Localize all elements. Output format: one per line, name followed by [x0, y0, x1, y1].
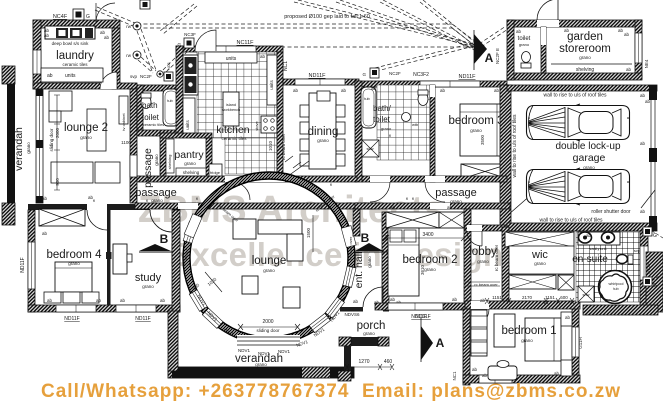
svg-text:ab: ab — [160, 298, 166, 303]
svg-text:grano: grano — [579, 55, 591, 60]
svg-text:G11H: G11H — [578, 337, 583, 348]
svg-text:lounge: lounge — [252, 255, 287, 267]
svg-text:1270: 1270 — [358, 359, 369, 365]
svg-text:grano: grano — [151, 198, 163, 203]
svg-text:grano: grano — [142, 284, 154, 289]
svg-text:ab: ab — [480, 298, 486, 303]
svg-text:units: units — [226, 56, 237, 62]
svg-text:ceramic tiles: ceramic tiles — [62, 62, 88, 67]
svg-text:fl: fl — [196, 196, 198, 201]
svg-text:NC11F: NC11F — [236, 40, 254, 46]
svg-text:wall to rise to u/s of roof ti: wall to rise to u/s of roof tiles — [539, 218, 603, 224]
svg-text:ND11F: ND11F — [458, 74, 476, 80]
svg-text:ND11F: ND11F — [20, 257, 26, 272]
svg-text:dining: dining — [308, 126, 339, 138]
svg-text:Call/Whatsapp: +263778767374: Call/Whatsapp: +263778767374 Email: plan… — [41, 381, 621, 402]
svg-text:G: G — [362, 72, 366, 77]
svg-text:stove: stove — [254, 120, 259, 130]
svg-text:NC2F E: NC2F E — [495, 48, 500, 64]
svg-text:units: units — [185, 120, 190, 130]
svg-text:study: study — [135, 272, 162, 284]
svg-text:ab: ab — [47, 298, 53, 303]
svg-text:NC2F: NC2F — [389, 71, 401, 76]
svg-text:grano: grano — [154, 154, 159, 166]
svg-text:shelving: shelving — [183, 170, 200, 175]
svg-text:ent. hall: ent. hall — [353, 252, 365, 289]
svg-text:shw: shw — [366, 146, 373, 151]
svg-text:B: B — [361, 231, 370, 245]
svg-text:storeroom: storeroom — [559, 43, 611, 55]
svg-text:ab: ab — [640, 93, 646, 98]
svg-text:NC4F: NC4F — [646, 262, 651, 274]
svg-text:ab: ab — [44, 33, 50, 38]
svg-text:ab: ab — [293, 88, 299, 93]
svg-text:grano: grano — [521, 338, 533, 343]
svg-text:proposed Ø100 gep laid to fall: proposed Ø100 gep laid to fall 1:60 — [284, 14, 370, 20]
svg-text:1100: 1100 — [121, 140, 131, 145]
svg-text:ab: ab — [104, 35, 110, 40]
svg-text:ab: ab — [640, 209, 646, 214]
svg-text:NC3F2: NC3F2 — [413, 72, 429, 78]
svg-text:grano: grano — [534, 261, 546, 266]
svg-text:grano: grano — [470, 128, 482, 133]
svg-text:rc beam over: rc beam over — [281, 133, 286, 160]
svg-text:bedroom 3: bedroom 3 — [449, 115, 504, 127]
svg-text:sliding door: sliding door — [256, 328, 280, 333]
svg-text:ab: ab — [482, 373, 488, 378]
svg-text:900: 900 — [55, 178, 60, 186]
svg-text:units: units — [65, 73, 76, 79]
svg-text:roller shutter door: roller shutter door — [591, 209, 631, 215]
svg-text:wic: wic — [531, 249, 548, 261]
svg-text:rc beam over: rc beam over — [494, 244, 499, 271]
svg-text:svp: svp — [634, 248, 641, 253]
svg-text:toilet: toilet — [373, 115, 391, 124]
svg-text:wtb: wtb — [412, 122, 419, 127]
svg-text:svp: svp — [130, 74, 138, 79]
svg-text:bath: bath — [142, 101, 158, 110]
svg-text:pantry: pantry — [174, 149, 204, 161]
svg-text:ab: ab — [390, 205, 396, 210]
svg-text:grano: grano — [477, 259, 489, 264]
svg-text:ab: ab — [586, 233, 592, 238]
svg-text:A: A — [485, 51, 494, 65]
svg-text:lounge 2: lounge 2 — [64, 122, 108, 134]
svg-text:ceramic tiles: ceramic tiles — [143, 123, 164, 127]
svg-text:grano: grano — [26, 142, 31, 154]
svg-text:NC4F: NC4F — [53, 14, 68, 20]
svg-text:G: G — [177, 42, 181, 47]
svg-text:verandah: verandah — [13, 127, 25, 171]
svg-text:rc beam over: rc beam over — [474, 282, 498, 287]
svg-text:ab: ab — [564, 28, 570, 33]
svg-text:NC3F: NC3F — [184, 32, 196, 37]
svg-text:garage: garage — [573, 152, 606, 164]
svg-text:ceramic tiles: ceramic tiles — [221, 136, 247, 141]
svg-text:ab: ab — [472, 367, 478, 372]
svg-text:460: 460 — [384, 359, 393, 365]
svg-text:shw: shw — [582, 292, 589, 297]
svg-text:NC1: NC1 — [283, 61, 289, 71]
svg-text:rw: rw — [126, 24, 131, 29]
svg-text:ND11F: ND11F — [135, 316, 150, 322]
svg-text:bath/: bath/ — [373, 104, 392, 113]
svg-text:grano: grano — [255, 362, 267, 367]
svg-text:fl: fl — [406, 196, 408, 201]
svg-text:bedroom 4: bedroom 4 — [47, 249, 103, 261]
svg-text:1010: 1010 — [268, 140, 273, 151]
svg-text:ab: ab — [452, 297, 458, 302]
svg-text:2170: 2170 — [522, 295, 533, 300]
svg-text:ND11F: ND11F — [308, 73, 326, 79]
svg-text:ab: ab — [120, 298, 126, 303]
svg-text:vanity unit: vanity unit — [589, 247, 607, 251]
svg-text:shelving: shelving — [576, 67, 595, 73]
svg-text:fl: fl — [412, 196, 414, 201]
svg-text:ND11F: ND11F — [415, 314, 430, 320]
svg-text:NC1: NC1 — [452, 371, 457, 380]
svg-text:G: G — [653, 283, 657, 289]
svg-text:grano: grano — [424, 267, 436, 272]
svg-text:ab: ab — [554, 371, 560, 376]
svg-text:B: B — [160, 232, 169, 246]
svg-text:tv cabinet: tv cabinet — [121, 113, 126, 131]
svg-text:wall to rise to u/s of roof ti: wall to rise to u/s of roof tiles — [512, 114, 518, 178]
svg-text:1500: 1500 — [306, 227, 311, 238]
svg-text:toilet: toilet — [142, 113, 160, 122]
svg-text:grano: grano — [263, 268, 275, 273]
svg-text:NC1: NC1 — [166, 61, 171, 70]
svg-text:ab: ab — [618, 28, 624, 33]
svg-text:tub: tub — [364, 96, 370, 101]
svg-text:G: G — [86, 14, 90, 20]
svg-text:units: units — [269, 80, 274, 90]
svg-text:passage: passage — [435, 187, 477, 199]
svg-text:ab: ab — [47, 73, 53, 79]
svg-text:3500: 3500 — [480, 134, 485, 145]
svg-text:grano: grano — [450, 199, 462, 204]
svg-text:ab: ab — [260, 54, 266, 59]
svg-text:ab: ab — [42, 231, 48, 236]
svg-text:2000: 2000 — [55, 127, 60, 138]
svg-text:double lock-up: double lock-up — [555, 141, 620, 152]
svg-text:NDVS6: NDVS6 — [344, 312, 360, 317]
svg-text:1151: 1151 — [545, 295, 555, 300]
svg-text:garden: garden — [567, 31, 603, 43]
svg-text:grano: grano — [80, 135, 92, 140]
svg-text:NE4: NE4 — [644, 59, 649, 68]
svg-text:ab: ab — [371, 86, 377, 91]
svg-text:3400: 3400 — [422, 232, 433, 238]
svg-text:tub: tub — [613, 287, 618, 291]
svg-text:wall to rise to u/s of roof ti: wall to rise to u/s of roof tiles — [543, 93, 607, 99]
svg-text:ab: ab — [390, 297, 396, 302]
svg-text:2000: 2000 — [262, 319, 273, 325]
svg-text:grano: grano — [68, 261, 80, 266]
svg-text:ab: ab — [447, 205, 453, 210]
svg-text:grano: grano — [381, 126, 392, 131]
svg-text:600: 600 — [560, 295, 568, 300]
svg-text:fl: fl — [93, 198, 95, 203]
svg-text:laundry: laundry — [56, 50, 94, 62]
svg-text:ab: ab — [624, 32, 630, 37]
svg-text:workbench: workbench — [222, 108, 240, 112]
svg-text:bedroom 2: bedroom 2 — [403, 254, 458, 266]
svg-text:rw: rw — [126, 53, 131, 58]
svg-text:ab: ab — [353, 299, 359, 304]
svg-text:grano: grano — [519, 42, 530, 47]
svg-text:island: island — [226, 103, 236, 107]
svg-text:grano: grano — [363, 331, 375, 336]
svg-text:ab: ab — [96, 298, 102, 303]
svg-text:grano: grano — [367, 256, 372, 268]
svg-text:NC2F: NC2F — [140, 74, 152, 79]
svg-text:tub: tub — [167, 98, 173, 103]
svg-text:ab: ab — [42, 196, 48, 201]
svg-text:ab: ab — [440, 88, 446, 93]
svg-text:ab: ab — [341, 88, 347, 93]
svg-text:en-suite: en-suite — [572, 254, 608, 265]
svg-text:bedroom 1: bedroom 1 — [502, 325, 557, 337]
svg-text:ab: ab — [640, 141, 646, 146]
svg-text:shelving: shelving — [167, 155, 172, 170]
svg-text:fl: fl — [330, 182, 332, 187]
svg-text:whirlpool: whirlpool — [609, 282, 624, 286]
svg-text:ab: ab — [626, 67, 632, 72]
svg-text:passage: passage — [142, 148, 154, 188]
svg-text:ab: ab — [516, 29, 522, 34]
svg-text:ab: ab — [494, 88, 500, 93]
svg-text:1151: 1151 — [492, 295, 502, 300]
svg-text:deep bowl s/s sink: deep bowl s/s sink — [52, 41, 90, 46]
svg-text:ab: ab — [645, 99, 651, 104]
svg-text:fl: fl — [389, 133, 391, 138]
svg-text:A: A — [436, 336, 445, 350]
svg-text:ab: ab — [565, 315, 571, 320]
svg-text:ND11F: ND11F — [64, 316, 79, 322]
svg-text:kitchen: kitchen — [216, 124, 249, 136]
svg-text:3610: 3610 — [420, 264, 425, 275]
svg-text:grano: grano — [317, 138, 329, 143]
svg-text:fridge: fridge — [210, 170, 221, 175]
svg-text:lobby: lobby — [469, 246, 497, 258]
svg-text:sliding door: sliding door — [49, 128, 54, 152]
svg-text:grano: grano — [184, 161, 196, 166]
